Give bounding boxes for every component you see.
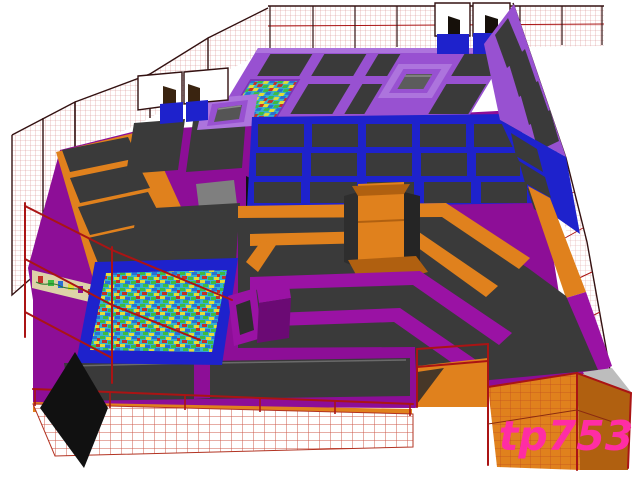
- trampoline-mat: [312, 124, 358, 147]
- back-wall-trampoline-deck: [215, 48, 510, 120]
- dunk-platform: [186, 100, 208, 122]
- trampoline-mat: [258, 124, 304, 147]
- trampoline-mat: [254, 182, 301, 203]
- park-scene: tp753: [0, 0, 640, 480]
- dunk-platform: [437, 34, 469, 54]
- trampoline-mat: [366, 124, 412, 147]
- box-front: [257, 298, 291, 343]
- trampoline-mat: [126, 119, 185, 174]
- trampoline-mat: [421, 153, 467, 176]
- tower-side: [404, 192, 420, 266]
- trampoline-mat: [256, 153, 302, 176]
- trampoline-mat: [366, 153, 412, 176]
- trampoline-mat: [311, 153, 357, 176]
- party-box: tp753: [488, 373, 633, 470]
- watermark-text: tp753: [499, 412, 634, 460]
- trampoline-mat: [128, 203, 240, 266]
- trampoline-park-render: tp753: [0, 0, 640, 480]
- trampoline-mat: [424, 182, 471, 203]
- tower-side: [344, 192, 358, 268]
- mat-divider: [194, 359, 210, 399]
- trampoline-mat: [420, 124, 466, 147]
- foam-cubes: [90, 270, 227, 352]
- dunk-platform: [160, 102, 183, 124]
- center-tower: [344, 182, 428, 282]
- trampoline-mat: [476, 153, 520, 176]
- front-trampoline-row: [64, 358, 410, 401]
- trampoline-mat: [481, 182, 527, 203]
- main-foam-pit: [76, 258, 238, 365]
